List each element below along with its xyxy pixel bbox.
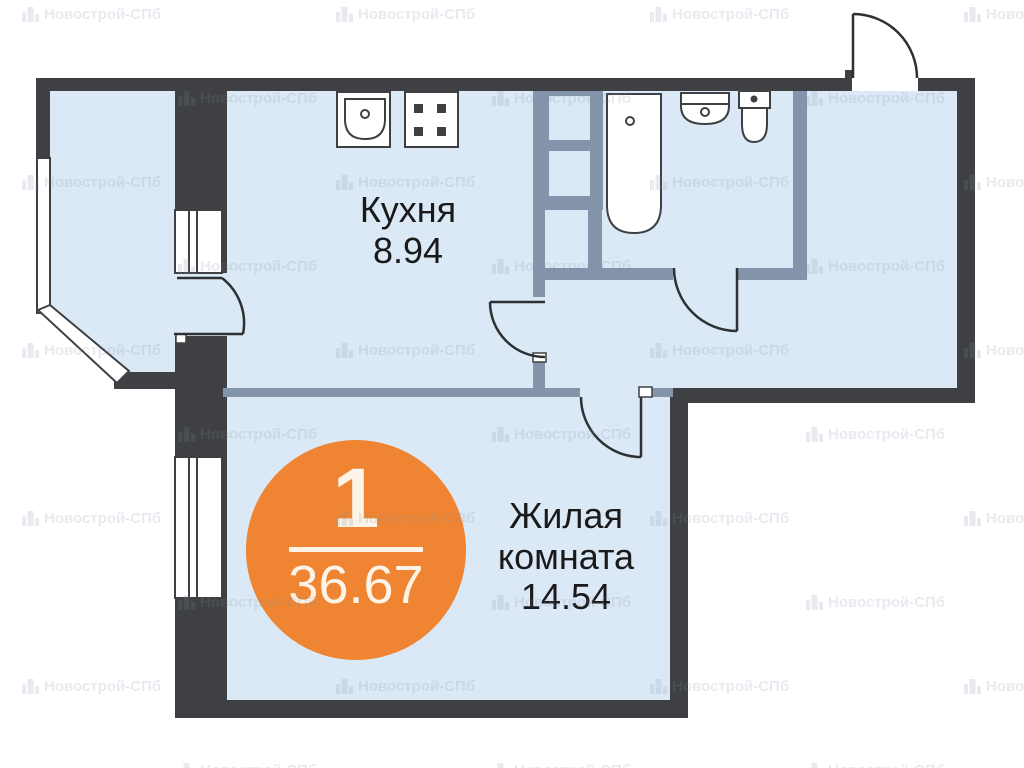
bathroom-right-wall [793, 91, 807, 280]
unit-rooms-count: 1 [333, 456, 380, 540]
left-wall [36, 78, 50, 162]
vent-shaft-upper [549, 96, 590, 140]
stove-burner [414, 104, 423, 113]
stove-burner [414, 127, 423, 136]
balcony-window-left [37, 158, 50, 313]
right-wall [957, 78, 975, 403]
hall-top-wall-left [533, 268, 673, 280]
living-room-name: Жилая комната [461, 496, 671, 577]
kitchen-balcony-window [175, 210, 222, 273]
entrance-door-swing [853, 14, 917, 78]
living-window [175, 457, 222, 598]
unit-badge: 1 36.67 [246, 440, 466, 660]
toilet-button [751, 96, 758, 103]
floor-plan-drawing [0, 0, 1024, 768]
top-wall-left [36, 78, 852, 91]
floor-plan: Кухня 8.94 Жилая комната 14.54 1 36.67 Н… [0, 0, 1024, 768]
living-room-label: Жилая комната 14.54 [461, 496, 671, 618]
badge-divider [289, 547, 423, 552]
living-bottom-wall [175, 700, 688, 718]
kitchen-label: Кухня 8.94 [318, 190, 498, 271]
unit-total-area: 36.67 [288, 558, 423, 612]
pier-wall-lower [175, 598, 227, 704]
living-room-area: 14.54 [461, 577, 671, 618]
kitchen-living-wall [223, 388, 580, 397]
living-right-wall [670, 388, 688, 718]
wall-cap [639, 387, 652, 397]
stove-icon [405, 92, 458, 147]
toilet-bowl [742, 108, 767, 142]
vent-shaft-lower [549, 151, 590, 196]
pier-wall-upper [175, 78, 227, 210]
wall-cap [176, 334, 186, 343]
pier-wall-middle [175, 336, 227, 457]
kitchen-name: Кухня [318, 190, 498, 231]
kitchen-area: 8.94 [318, 231, 498, 272]
stove-burner [437, 127, 446, 136]
hall-bottom-wall [670, 388, 975, 403]
bathtub-icon [607, 94, 661, 233]
stove-burner [437, 104, 446, 113]
kitchen-hall-wall [533, 91, 545, 297]
